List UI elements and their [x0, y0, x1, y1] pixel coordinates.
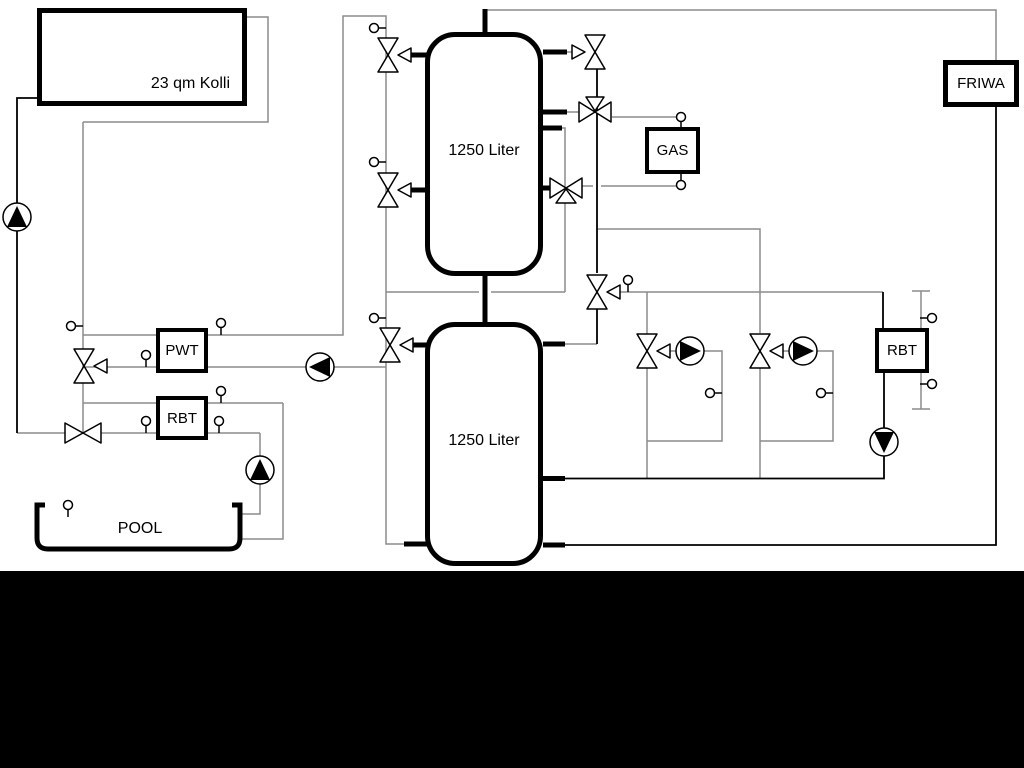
heating-circuit2-pump-icon — [789, 337, 817, 365]
pwt-loop-pump-icon — [306, 353, 334, 381]
temp-sensor-icon — [817, 389, 834, 398]
temp-sensor-icon — [920, 380, 937, 389]
solar-collector-box: 23 qm Kolli — [37, 8, 247, 106]
gas-supply-valve-icon — [579, 97, 611, 122]
solar-pump-icon — [3, 203, 31, 231]
temp-sensor-icon — [677, 173, 686, 190]
temp-sensor-icon — [142, 351, 151, 368]
rbt-pool-label: RBT — [167, 410, 197, 427]
temp-sensor-icon — [370, 158, 387, 167]
friwa-label: FRIWA — [957, 75, 1005, 92]
temp-sensor-icon — [67, 322, 84, 331]
pwt-branch-valve-icon — [74, 349, 107, 383]
temp-sensor-icon — [624, 276, 633, 293]
distribution-valve-icon — [587, 275, 620, 309]
tank2-solar-valve-icon — [380, 328, 413, 362]
rbt-pool-heat-exchanger-box: RBT — [156, 396, 208, 440]
buffer-tank-bottom-label: 1250 Liter — [430, 432, 538, 450]
solar-tank1-bottom-valve-icon — [378, 173, 411, 207]
rbt-heating-pump-icon — [870, 428, 898, 456]
friwa-station-box: FRIWA — [943, 60, 1019, 107]
gas-boiler-label: GAS — [657, 142, 689, 159]
temp-sensor-icon — [217, 387, 226, 404]
heating-circuit1-valve-icon — [637, 334, 670, 368]
gas-boiler-box: GAS — [645, 127, 700, 174]
temp-sensor-icon — [370, 314, 387, 323]
pwt-label: PWT — [165, 342, 198, 359]
temp-sensor-icon — [370, 24, 387, 33]
collector-label: 23 qm Kolli — [151, 75, 230, 93]
rbt-heating-box: RBT — [875, 328, 929, 373]
hydraulic-schematic: 23 qm Kolli 1250 Liter 1250 Liter GAS FR… — [0, 0, 1024, 768]
temp-sensor-icon — [706, 389, 723, 398]
temp-sensor-icon — [920, 314, 937, 323]
pwt-heat-exchanger-box: PWT — [156, 328, 208, 373]
buffer-tank-bottom: 1250 Liter — [425, 322, 543, 566]
heating-circuit1-pump-icon — [676, 337, 704, 365]
temp-sensor-icon — [217, 319, 226, 336]
temp-sensor-icon — [215, 417, 224, 434]
buffer-tank-top-label: 1250 Liter — [430, 142, 538, 160]
gas-return-valve-icon — [550, 178, 582, 203]
solar-tank1-top-valve-icon — [378, 38, 411, 72]
tank1-charge-top-valve-icon — [572, 35, 605, 69]
pool-label: POOL — [97, 520, 183, 538]
temp-sensor-icon — [64, 501, 73, 518]
rbt-heating-label: RBT — [887, 342, 917, 359]
temp-sensor-icon — [142, 417, 151, 434]
buffer-tank-top: 1250 Liter — [425, 32, 543, 276]
pool-pump-icon — [246, 456, 274, 484]
bottom-black-band — [0, 571, 1024, 768]
heating-circuit2-valve-icon — [750, 334, 783, 368]
